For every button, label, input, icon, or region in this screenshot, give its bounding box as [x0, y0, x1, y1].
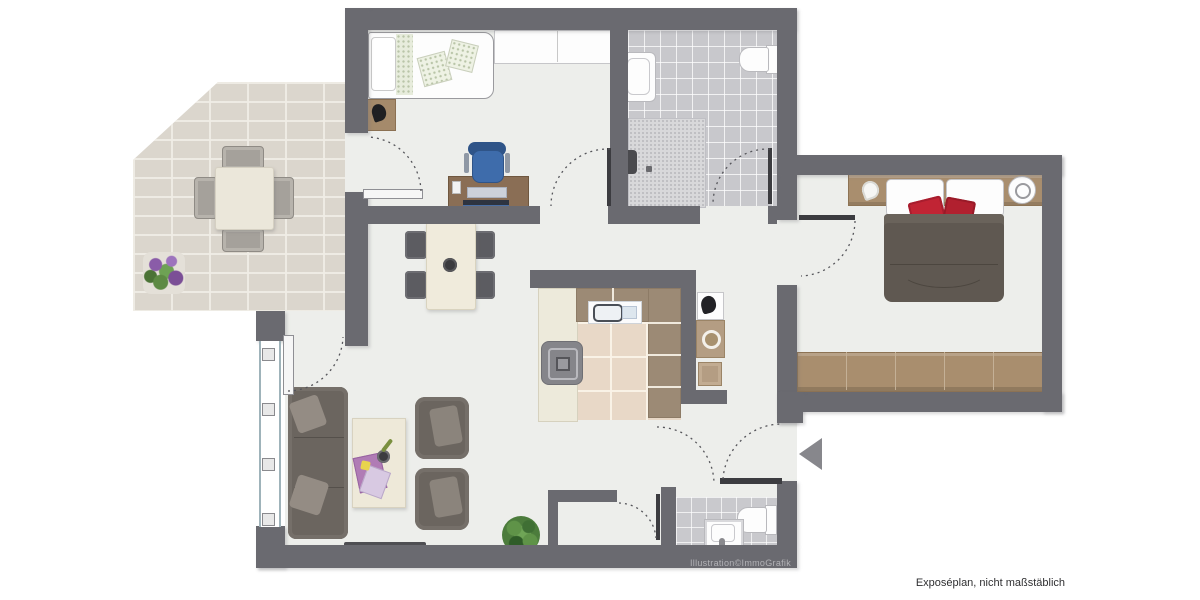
terrace-flower-planter	[143, 252, 185, 294]
doorway-bedroom-2	[777, 220, 797, 285]
window-mullion	[262, 403, 275, 416]
shower-drain-icon	[646, 166, 652, 172]
keyboard-icon	[467, 187, 507, 198]
wall-wc-west	[661, 487, 676, 545]
wall-bedroom2-north	[777, 155, 1062, 175]
wall-west-bedroom1-a	[345, 8, 368, 133]
office-chair	[472, 150, 504, 183]
table-bowl-icon	[443, 258, 457, 272]
wall-bathroom-left	[610, 30, 628, 224]
washing-machine-door-icon	[702, 330, 721, 349]
wardrobe-divider	[944, 352, 945, 390]
stool	[698, 362, 722, 386]
door-leaf-entrance	[720, 478, 782, 484]
lamp-ring	[1015, 183, 1031, 199]
chair-armrest	[464, 153, 469, 173]
plan-disclaimer: Exposéplan, nicht maßstäblich	[905, 577, 1065, 589]
wall-bedroom2-east	[1042, 155, 1062, 412]
bed-pillow	[371, 37, 396, 91]
door-leaf-bedroom2	[799, 215, 855, 220]
magazine-detail	[360, 460, 371, 471]
bed-blanket-pattern	[396, 34, 413, 95]
wall-niche-north	[548, 490, 617, 502]
chair-armrest	[505, 153, 510, 173]
wardrobe-sideboard	[797, 352, 1044, 392]
wall-bedroom2-south	[777, 392, 1062, 412]
wall-entry-corner	[777, 392, 803, 423]
doorway-bedroom-1	[540, 206, 608, 224]
wardrobe	[494, 30, 624, 64]
floor-plan: Illustration©ImmoGrafik Exposéplan, nich…	[0, 0, 1200, 600]
counter-divider	[648, 354, 681, 356]
wardrobe-divider	[557, 30, 558, 62]
window-mullion	[262, 348, 275, 361]
wall-bathroom-south-a	[608, 206, 700, 224]
counter-divider	[648, 322, 681, 324]
wall-kitchen-north	[530, 270, 696, 288]
door-leaf-bedroom1	[607, 148, 611, 206]
kitchen-faucet-icon	[622, 306, 637, 319]
desk-item-icon	[452, 181, 461, 194]
wall-kitchen-east	[681, 288, 696, 404]
door-leaf-bathroom	[768, 148, 772, 204]
stove-burner-icon	[556, 357, 570, 371]
door-leaf-terrace-living	[283, 335, 294, 395]
wall-bedroom1-south	[345, 206, 540, 224]
doorway-terrace-bedroom-1	[345, 133, 368, 192]
wardrobe-divider	[993, 352, 994, 390]
dining-chair	[473, 231, 495, 259]
wall-living-nw	[256, 311, 285, 341]
shower	[628, 118, 706, 208]
terrace-chair-bottom	[222, 228, 264, 252]
door-leaf-wc	[656, 494, 660, 540]
doorway-bathroom	[700, 206, 768, 224]
illustration-credit: Illustration©ImmoGrafik	[688, 558, 793, 568]
toilet	[739, 47, 769, 72]
wardrobe-divider	[846, 352, 847, 390]
window-living-room	[259, 341, 281, 527]
kitchen-counter-right	[648, 288, 681, 418]
wall-niche-west	[548, 490, 558, 545]
wall-east-a	[777, 8, 797, 220]
dining-chair	[473, 271, 495, 299]
terrace-table	[215, 167, 274, 230]
door-leaf-terrace-bedroom1	[363, 189, 423, 199]
counter-divider	[648, 386, 681, 388]
wall-kitchen-stub	[696, 390, 727, 404]
wall-east-c	[777, 481, 797, 545]
window-mullion	[262, 513, 275, 526]
bathroom-sink-basin	[627, 58, 650, 95]
window-mullion	[262, 458, 275, 471]
dining-chair	[405, 271, 427, 299]
shower-fixture-icon	[628, 150, 637, 174]
duvet-fold	[900, 252, 988, 288]
kitchen-sink-basin	[593, 304, 623, 322]
sofa-seam	[294, 437, 344, 438]
wardrobe-divider	[895, 352, 896, 390]
doorway-entrance	[777, 423, 797, 481]
entrance-arrow-icon	[799, 438, 822, 470]
dining-chair	[405, 231, 427, 259]
wall-north	[345, 8, 795, 30]
wall-bathroom-south-b	[768, 206, 777, 224]
